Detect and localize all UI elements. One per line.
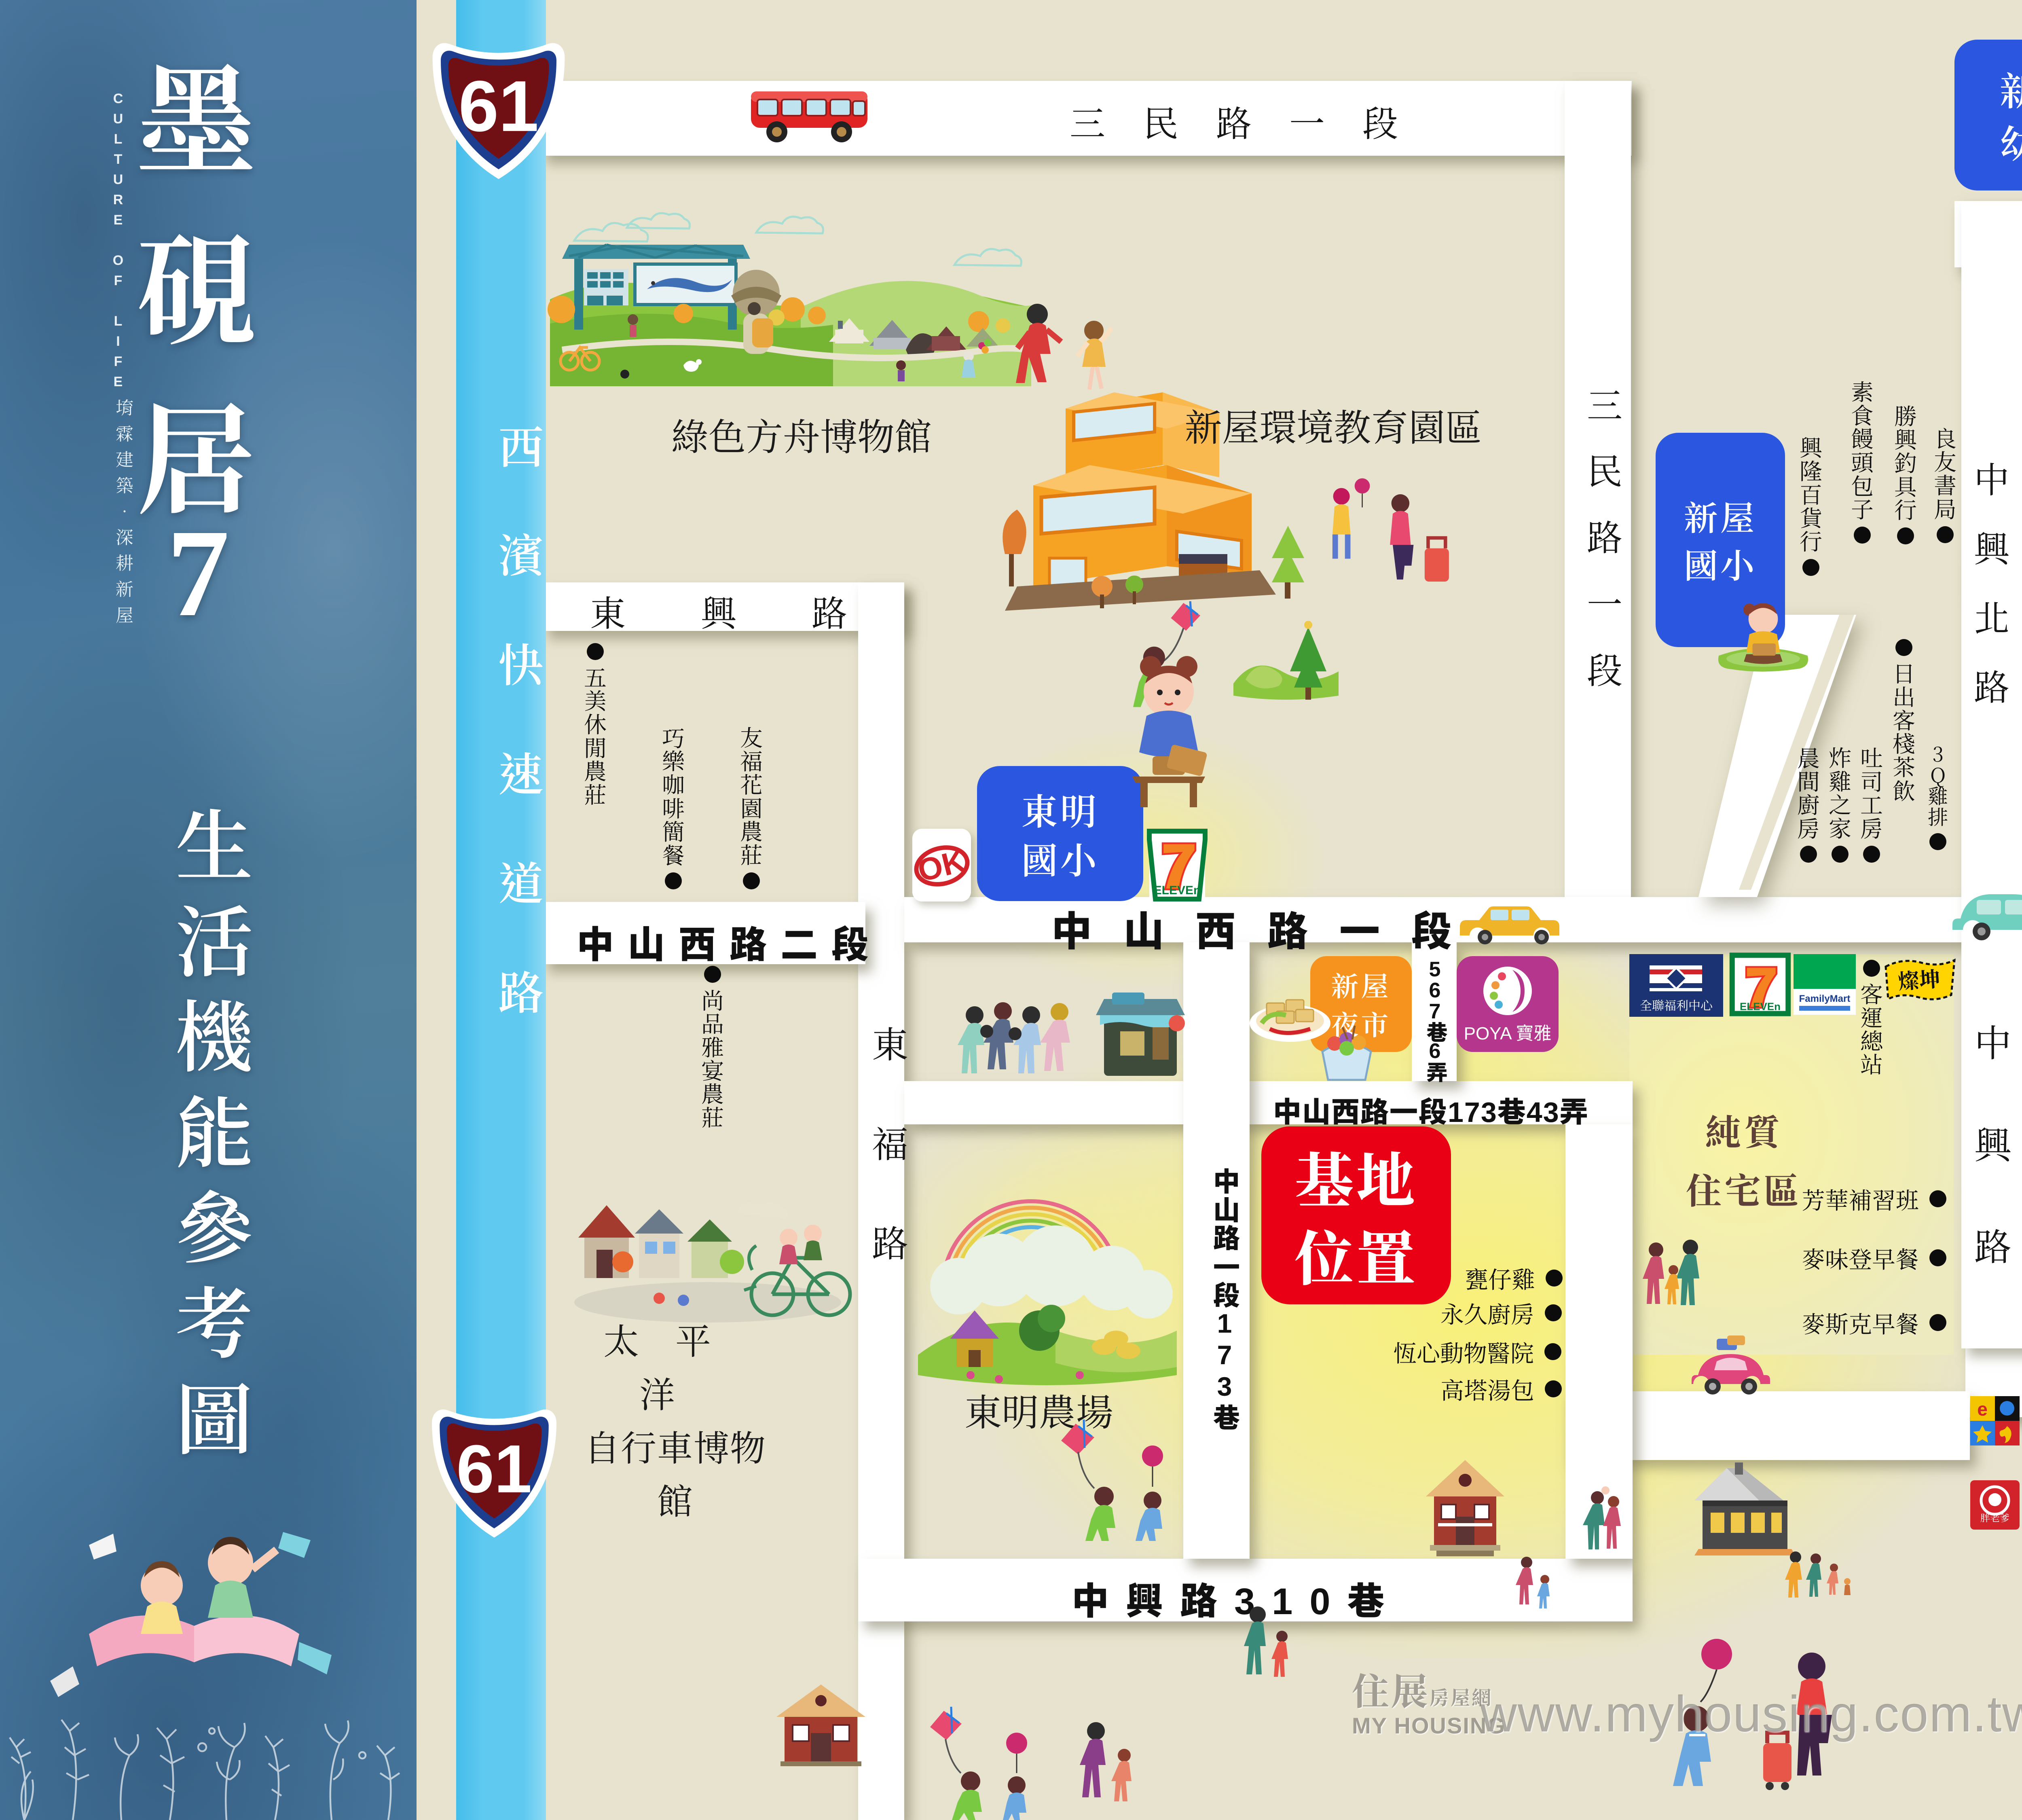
- svg-text:ELEVEn: ELEVEn: [1740, 1000, 1781, 1012]
- svg-text:FamilyMart: FamilyMart: [1799, 993, 1851, 1004]
- svg-text:61: 61: [459, 66, 539, 146]
- svg-text:燦坤: 燦坤: [1897, 962, 1941, 995]
- svg-text:OK: OK: [914, 842, 969, 889]
- svg-text:e: e: [1977, 1399, 1988, 1420]
- svg-text:61: 61: [457, 1431, 532, 1507]
- svg-text:全聯福利中心: 全聯福利中心: [1640, 996, 1713, 1014]
- svg-text:POYA 寶雅: POYA 寶雅: [1464, 1024, 1552, 1043]
- svg-text:ELEVEn: ELEVEn: [1154, 884, 1201, 897]
- svg-text:胖老爹: 胖老爹: [1980, 1510, 2009, 1524]
